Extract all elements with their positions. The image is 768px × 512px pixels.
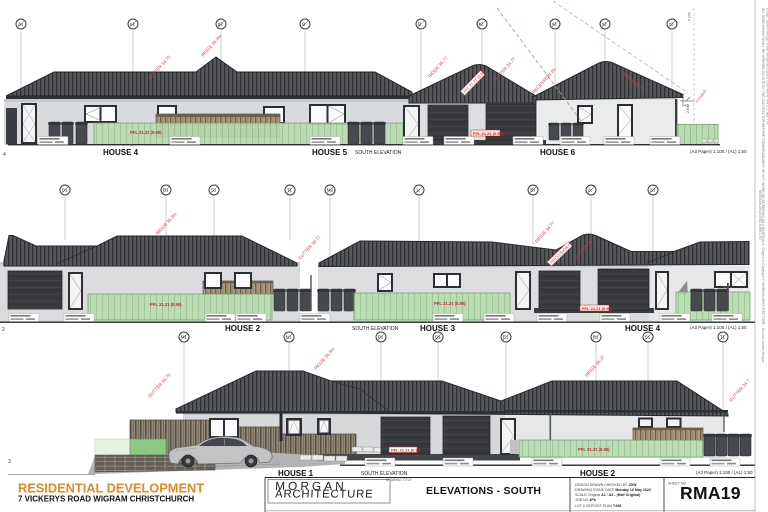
svg-text:PFL 21.21 (0.90): PFL 21.21 (0.90) (434, 301, 466, 306)
svg-text:7 VICKERYS ROAD WIGRAM CHRISTC: 7 VICKERYS ROAD WIGRAM CHRISTCHURCH (18, 495, 194, 504)
svg-text:N1: N1 (286, 335, 292, 340)
svg-text:PFL 21.21 (0.90): PFL 21.21 (0.90) (150, 302, 182, 307)
svg-text:2: 2 (2, 327, 5, 333)
svg-text:RESIDENTIAL DEVELOPMENT: RESIDENTIAL DEVELOPMENT (18, 481, 204, 496)
svg-text:5.000: 5.000 (688, 12, 692, 21)
svg-text:v2: v2 (552, 22, 557, 27)
svg-text:z2: z2 (669, 22, 674, 27)
svg-text:MORGAN ARCHITECTURE LTD: MORGAN ARCHITECTURE LTD (758, 190, 762, 240)
svg-text:e2: e2 (130, 22, 135, 27)
svg-text:SOUTH ELEVATION: SOUTH ELEVATION (355, 150, 402, 156)
svg-text:DRAWING TITLE: DRAWING TITLE (386, 478, 412, 482)
svg-text:i2: i2 (302, 22, 306, 27)
svg-text:2d: 2d (650, 188, 655, 193)
svg-text:DRAWING ISSUE DATE Monday 16: DRAWING ISSUE DATE Monday 16 May 2022 (575, 488, 651, 492)
svg-text:PFL 21.21 (0.90): PFL 21.21 (0.90) (582, 306, 613, 311)
svg-text:M1: M1 (181, 335, 188, 340)
svg-text:g2: g2 (218, 22, 223, 27)
svg-text:PFL 21.21 (0.90): PFL 21.21 (0.90) (473, 131, 504, 136)
svg-text:1c: 1c (416, 188, 421, 193)
svg-text:HOUSE 6: HOUSE 6 (540, 148, 576, 157)
svg-text:T1: T1 (287, 188, 293, 193)
svg-text:DESIGN DRAWN CHECKED BY JDW: DESIGN DRAWN CHECKED BY JDW (575, 483, 637, 487)
svg-text:PFL 21.21 (0.90): PFL 21.21 (0.90) (391, 447, 422, 452)
svg-text:ARCHITECTURE: ARCHITECTURE (275, 489, 374, 501)
svg-text:(A3 Paper) 1:100 / (A1) 1:50: (A3 Paper) 1:100 / (A1) 1:50 (696, 470, 753, 475)
svg-text:HOUSE 2: HOUSE 2 (225, 324, 261, 333)
svg-text:S1: S1 (645, 335, 651, 340)
svg-text:2.600: 2.600 (686, 105, 690, 113)
svg-text:2c: 2c (588, 188, 593, 193)
svg-text:HOUSE 1: HOUSE 1 (278, 469, 314, 478)
svg-text:2a: 2a (18, 22, 23, 27)
svg-text:RMA19: RMA19 (680, 483, 741, 503)
svg-text:PFL 21.21 (0.90): PFL 21.21 (0.90) (130, 130, 162, 135)
svg-text:(A3 Paper) 1:100 / (A1) 1:50: (A3 Paper) 1:100 / (A1) 1:50 (690, 149, 747, 154)
svg-text:x2: x2 (602, 22, 607, 27)
svg-text:T1: T1 (720, 335, 726, 340)
svg-text:Q1: Q1 (435, 335, 441, 340)
svg-text:LOT 6 DEPOSIT PLAN T438: LOT 6 DEPOSIT PLAN T438 (575, 504, 621, 508)
svg-text:k2: k2 (479, 22, 484, 27)
svg-text:R1: R1 (593, 335, 599, 340)
svg-text:JOB NO 4Fb: JOB NO 4Fb (575, 498, 597, 502)
svg-text:D1: D1 (62, 188, 68, 193)
svg-text:l2: l2 (418, 22, 422, 27)
svg-text:R1: R1 (163, 188, 169, 193)
svg-text:3: 3 (8, 459, 11, 465)
svg-text:4: 4 (3, 152, 6, 158)
svg-text:(A3 Paper) 1:100 / (A1) 1:50: (A3 Paper) 1:100 / (A1) 1:50 (690, 325, 747, 330)
svg-text:E1: E1 (503, 335, 509, 340)
svg-text:PFL 21.21 (0.90): PFL 21.21 (0.90) (578, 447, 610, 452)
svg-text:SOUTH ELEVATION: SOUTH ELEVATION (361, 471, 408, 477)
svg-text:ELEVATIONS - SOUTH: ELEVATIONS - SOUTH (426, 485, 541, 497)
svg-text:S1: S1 (211, 188, 217, 193)
svg-text:HOUSE 2: HOUSE 2 (580, 469, 616, 478)
svg-text:HOUSE 4: HOUSE 4 (625, 324, 661, 333)
svg-text:SCALE Original A1 /: SCALE Original A1 / A3 - (Half Original) (575, 493, 641, 497)
svg-text:M2: M2 (327, 188, 334, 193)
svg-text:HOUSE 4: HOUSE 4 (103, 148, 139, 157)
svg-text:SOUTH ELEVATION: SOUTH ELEVATION (352, 326, 399, 332)
svg-text:ALL DIMENSIONS SHALL BE VERIFI: ALL DIMENSIONS SHALL BE VERIFIED ON SITE… (761, 8, 765, 363)
svg-text:2b: 2b (530, 188, 535, 193)
svg-text:HOUSE 5: HOUSE 5 (312, 148, 348, 157)
svg-text:P1: P1 (378, 335, 384, 340)
